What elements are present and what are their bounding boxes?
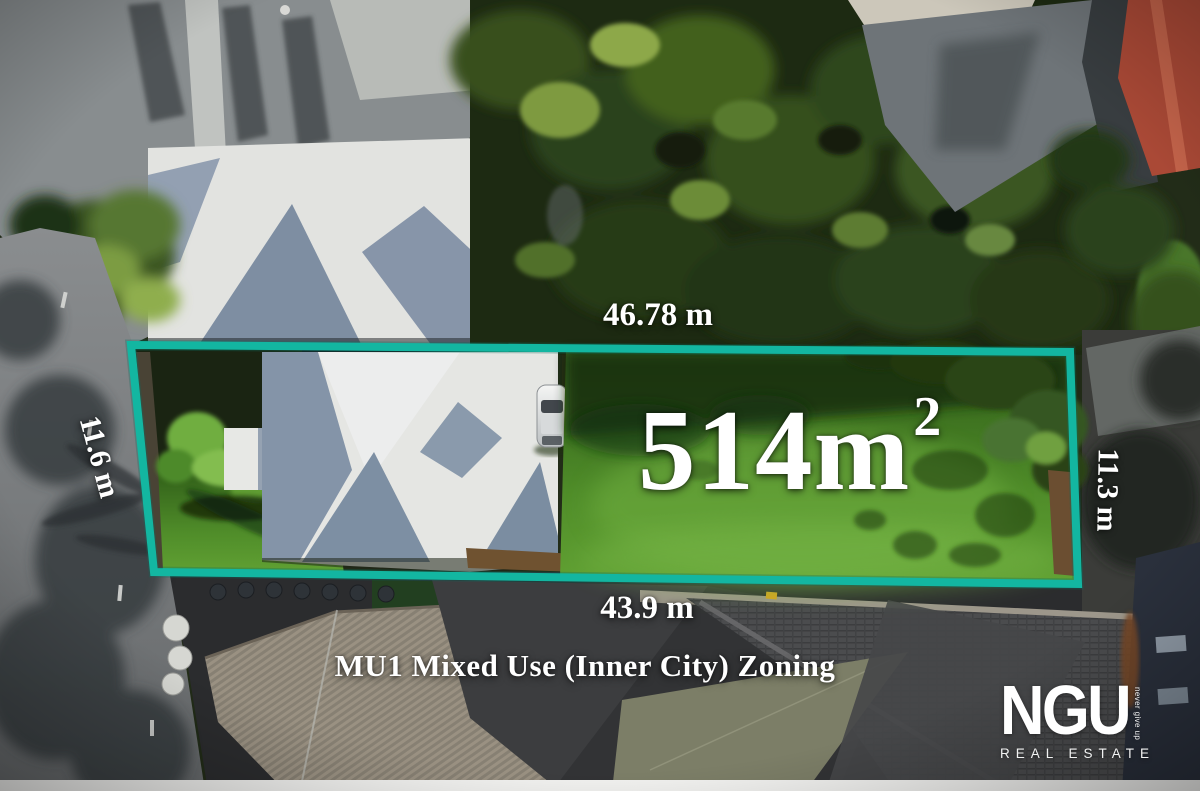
dimension-label-bottom: 43.9 m <box>600 592 694 625</box>
logo-brand-text: NGU <box>1000 682 1150 739</box>
land-area-label: 514m2 <box>638 393 942 508</box>
property-marketing-image: 46.78 m 11.6 m 11.3 m 43.9 m 514m2 MU1 M… <box>0 0 1200 791</box>
land-area-superscript: 2 <box>913 386 942 448</box>
dimension-label-right: 11.3 m <box>1091 448 1122 532</box>
logo-tagline-text: never give up <box>1133 687 1142 740</box>
zoning-label: MU1 Mixed Use (Inner City) Zoning <box>335 650 836 681</box>
land-area-value: 514m <box>638 387 910 514</box>
dimension-label-top: 46.78 m <box>603 299 713 332</box>
ngu-real-estate-logo: NGU never give up REAL ESTATE <box>1000 682 1170 761</box>
